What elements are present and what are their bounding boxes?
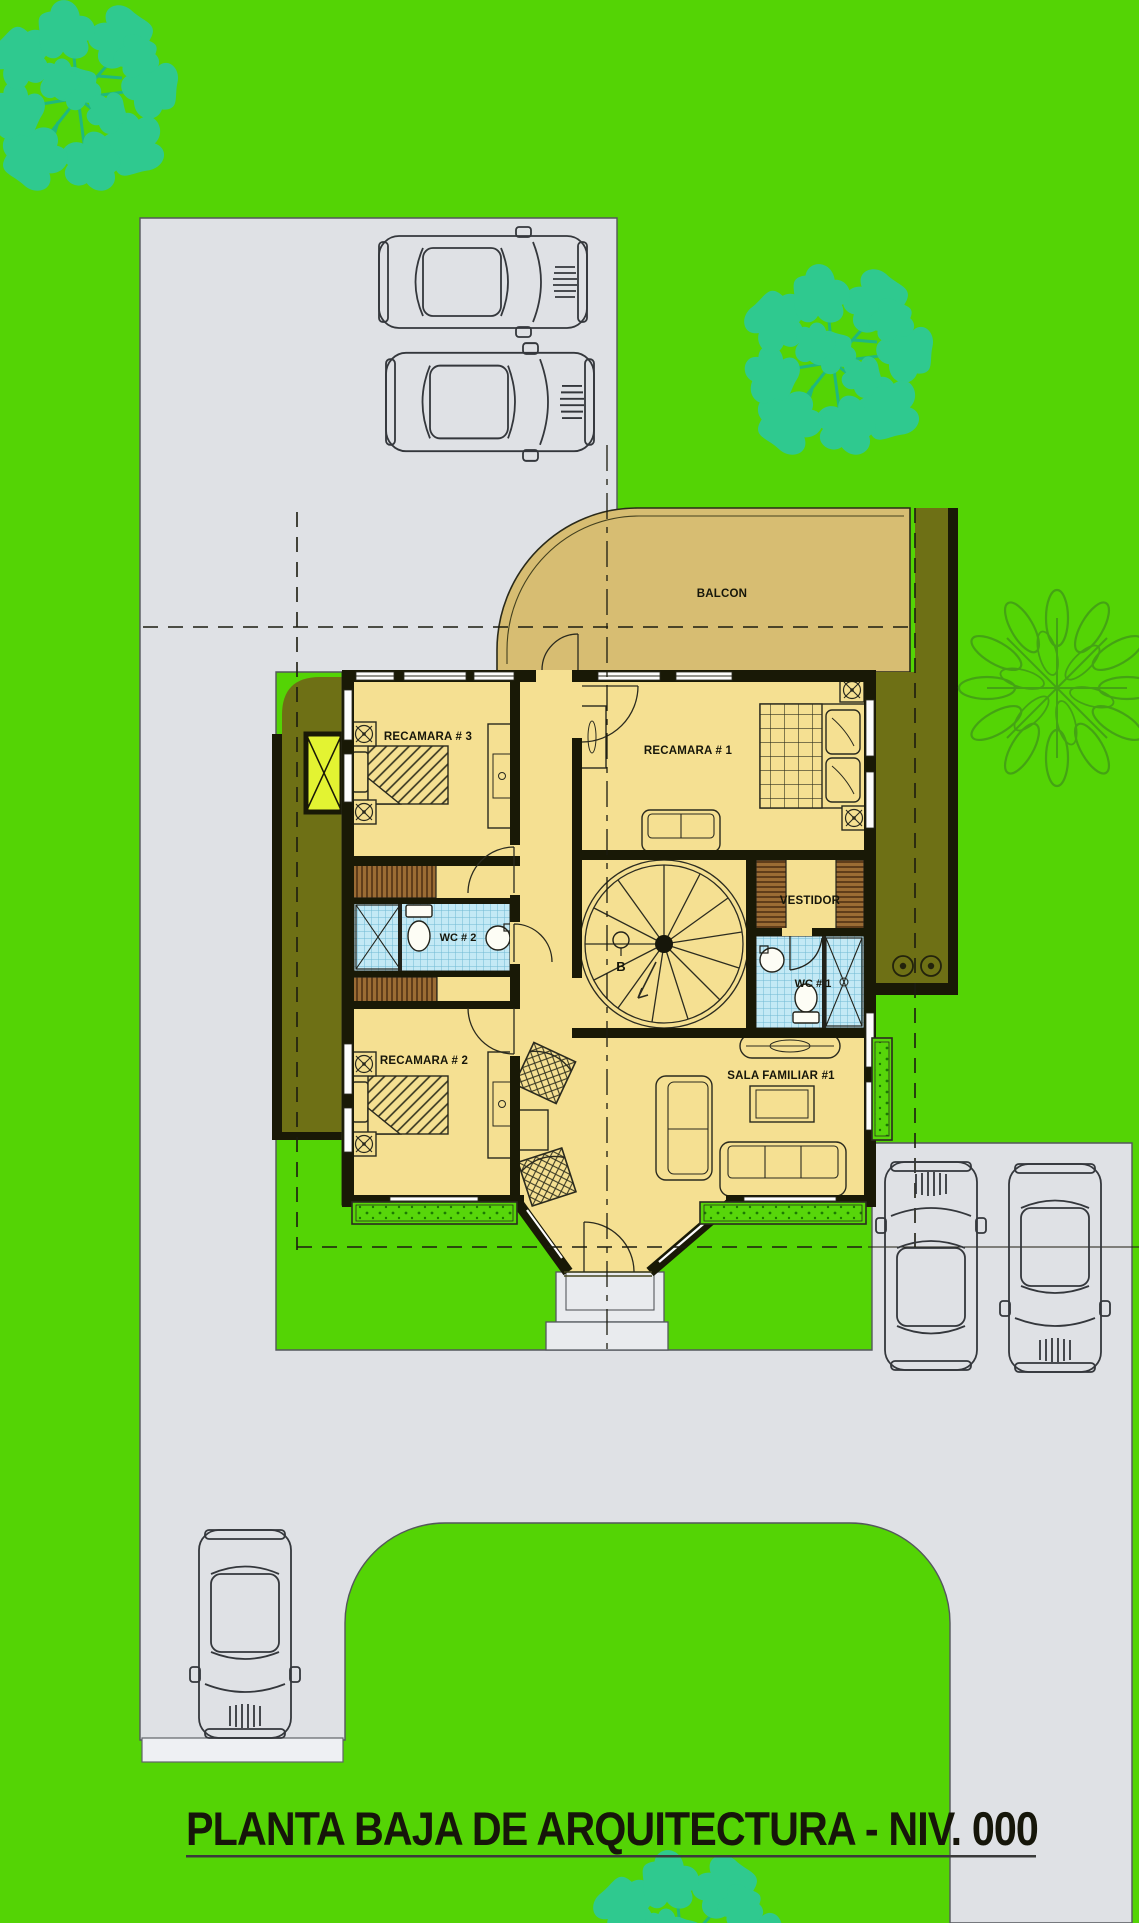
ceiling-fan-icon [352, 1132, 376, 1156]
drawing-title: PLANTA BAJA DE ARQUITECTURA - NIV. 000 [186, 1802, 1038, 1858]
stair-marker-label: B [616, 959, 625, 974]
ceiling-fan-icon [352, 800, 376, 824]
column-footing-icon [921, 956, 941, 976]
label-wc-2: WC # 2 [440, 932, 477, 944]
sofa-icon [720, 1142, 846, 1196]
ceiling-fan-icon [842, 806, 866, 830]
side-table [518, 1110, 548, 1150]
bed-pillow [352, 1082, 368, 1122]
label-balcony: BALCON [697, 588, 747, 600]
sofa-icon [656, 1076, 712, 1180]
label-bedroom-1: RECAMARA # 1 [644, 745, 733, 757]
side-patio-left [272, 677, 342, 1140]
ceiling-fan-icon [352, 722, 376, 746]
label-bedroom-2: RECAMARA # 2 [380, 1055, 468, 1067]
dresser-icon [578, 706, 606, 768]
bed-pillow [352, 752, 368, 792]
floor-plan-canvas: B [0, 0, 1139, 1923]
label-family-room: SALA FAMILIAR #1 [727, 1070, 835, 1082]
column-footing-icon [893, 956, 913, 976]
label-bedroom-3: RECAMARA # 3 [384, 731, 472, 743]
window-box-icon [306, 734, 342, 812]
street-end-apron [142, 1738, 343, 1762]
title-underline [186, 1855, 1036, 1858]
page-title: PLANTA BAJA DE ARQUITECTURA - NIV. 000 [186, 1802, 1038, 1855]
label-dressing-room: VESTIDOR [780, 895, 841, 907]
label-wc-1: WC # 1 [795, 978, 832, 990]
coffee-table [750, 1086, 814, 1122]
bathroom-2-floor [354, 903, 512, 971]
ceiling-fan-icon [352, 1052, 376, 1076]
toilet-icon [406, 905, 432, 951]
